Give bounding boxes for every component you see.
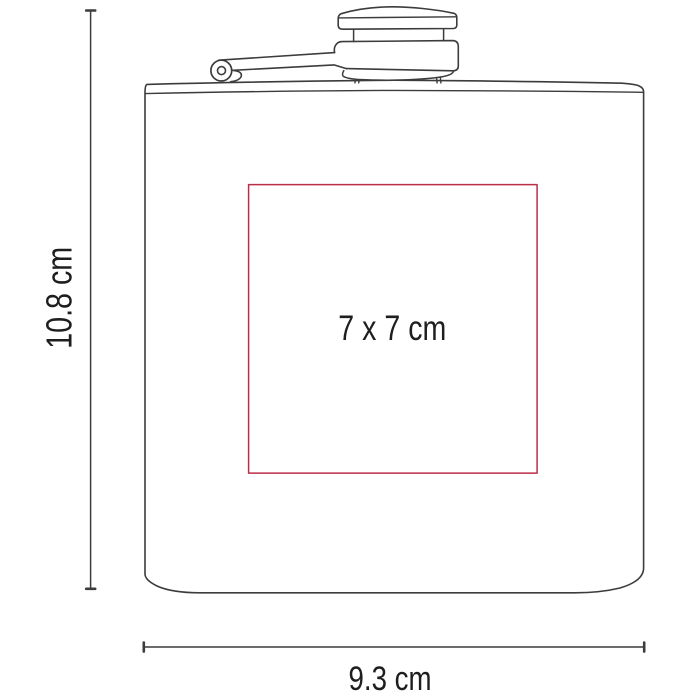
svg-text:10.8 cm: 10.8 cm <box>39 247 80 349</box>
svg-text:9.3 cm: 9.3 cm <box>349 660 432 698</box>
svg-text:7 x 7 cm: 7 x 7 cm <box>338 309 446 348</box>
